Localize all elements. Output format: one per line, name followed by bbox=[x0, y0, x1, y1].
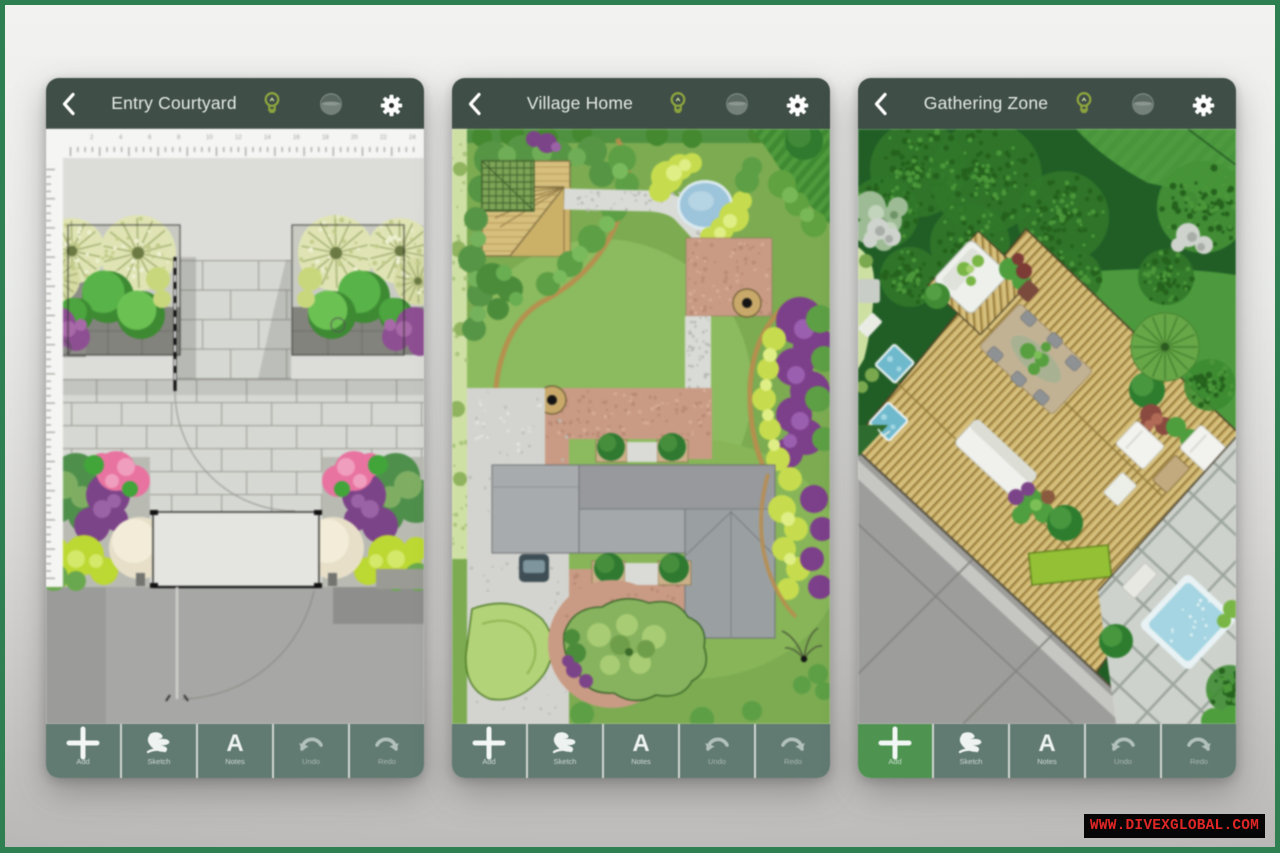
svg-text:18: 18 bbox=[322, 135, 329, 141]
svg-text:20: 20 bbox=[351, 135, 358, 141]
svg-text:14: 14 bbox=[264, 135, 271, 141]
svg-text:A: A bbox=[1038, 730, 1055, 757]
svg-text:12: 12 bbox=[235, 135, 242, 141]
svg-text:24: 24 bbox=[409, 135, 416, 141]
svg-text:16: 16 bbox=[293, 135, 300, 141]
svg-text:10: 10 bbox=[206, 135, 213, 141]
svg-text:A: A bbox=[226, 730, 243, 757]
svg-text:A: A bbox=[632, 730, 649, 757]
svg-text:22: 22 bbox=[380, 135, 387, 141]
